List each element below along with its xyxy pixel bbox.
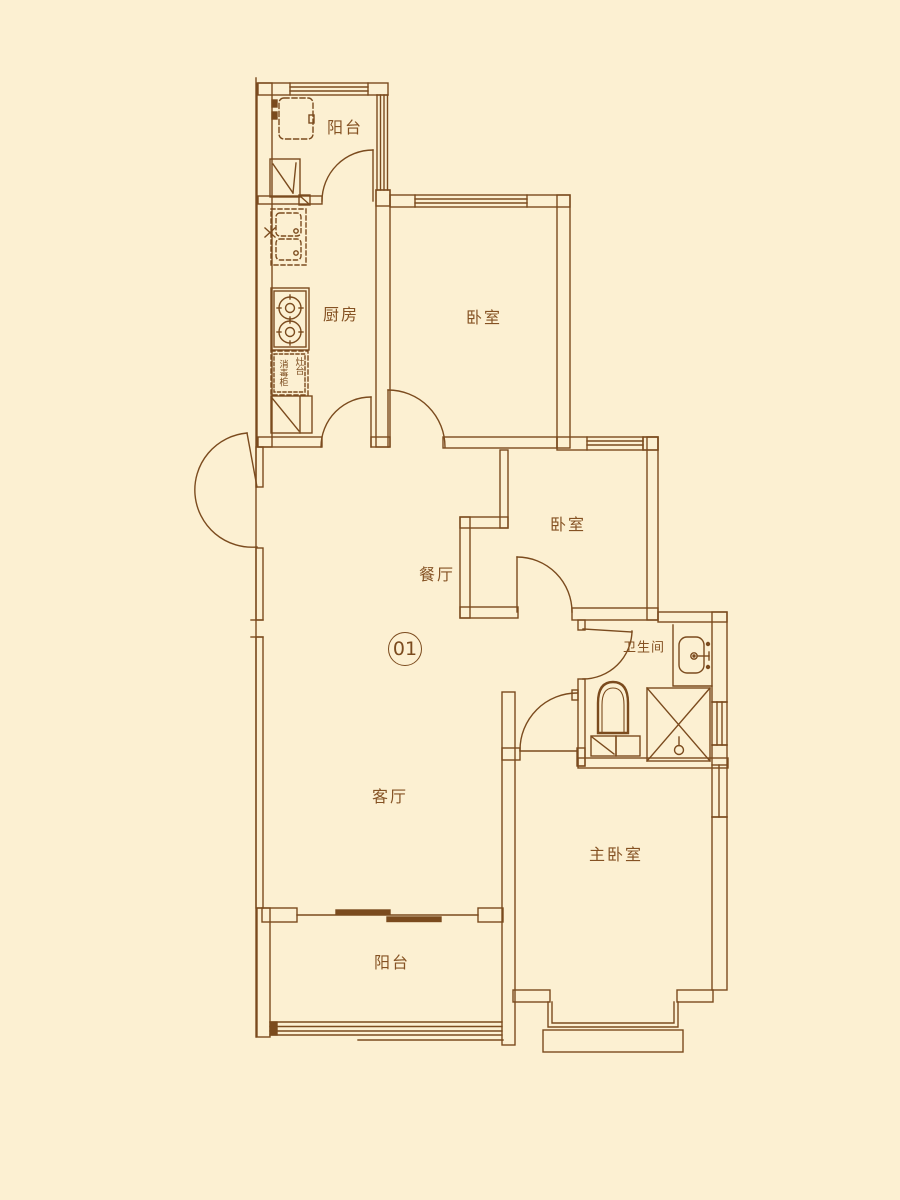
floorplan-drawing [0, 0, 900, 1200]
room-label-bedroom-middle: 卧室 [550, 511, 586, 535]
water-heater [270, 159, 300, 197]
stove [271, 288, 309, 350]
doors [195, 150, 632, 922]
room-label-bathroom: 卫生间 [623, 637, 665, 656]
walls [251, 83, 728, 1045]
lower-cabinet [271, 396, 312, 433]
room-label-balcony-bottom: 阳台 [374, 949, 410, 973]
floorplan: 阳台 厨房 卧室 卧室 餐厅 卫生间 客厅 主卧室 阳台 消毒柜 灶台 01 [0, 0, 900, 1200]
unit-number: 01 [393, 638, 417, 660]
bathroom-door [583, 629, 632, 632]
sliding-door [297, 910, 478, 922]
toilet [591, 682, 640, 756]
room-label-dining: 餐厅 [419, 561, 455, 585]
shower [647, 688, 710, 761]
room-label-living: 客厅 [372, 783, 408, 807]
windows [270, 1002, 683, 1052]
room-label-kitchen: 厨房 [323, 301, 359, 325]
kitchen-annotation-right: 灶台 [294, 357, 303, 375]
bay-window [543, 1002, 683, 1052]
kitchen-annotation-left: 消毒柜 [278, 360, 287, 387]
room-label-bedroom-north: 卧室 [466, 304, 502, 328]
washing-machine [279, 98, 313, 139]
room-label-master-bedroom: 主卧室 [589, 841, 643, 865]
room-label-balcony-top: 阳台 [327, 114, 363, 138]
bathroom-sink [673, 625, 712, 686]
kitchen-sink [265, 209, 306, 265]
unit-number-badge: 01 [388, 632, 422, 666]
